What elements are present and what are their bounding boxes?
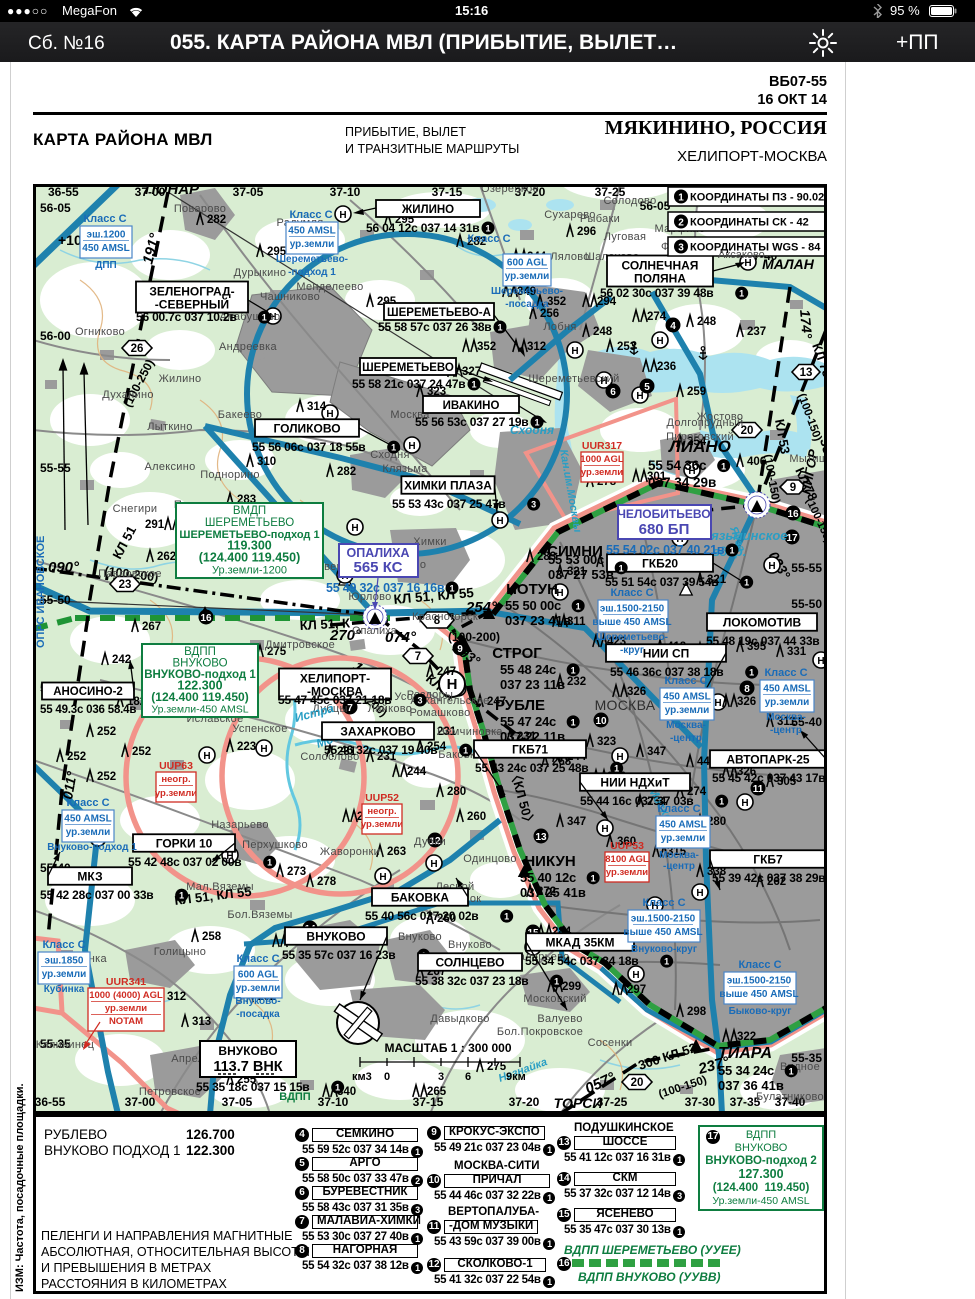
svg-text:ЖИЛИНО: ЖИЛИНО [401, 204, 454, 216]
svg-text:55 53 43с 037 25 47в: 55 53 43с 037 25 47в [392, 497, 505, 511]
svg-text:UUR341: UUR341 [106, 976, 146, 988]
svg-text:1: 1 [719, 797, 724, 807]
svg-text:55 49 32с 037 16 16в: 55 49 32с 037 16 16в [326, 581, 445, 595]
svg-text:ВДПП: ВДПП [279, 1091, 311, 1103]
svg-text:ГОЛИКОВО: ГОЛИКОВО [273, 421, 340, 435]
svg-text:55-55: 55-55 [40, 461, 71, 475]
svg-text:0: 0 [384, 1071, 390, 1083]
svg-text:36-55: 36-55 [35, 1095, 66, 1109]
svg-text:237: 237 [747, 326, 766, 338]
svg-text:291: 291 [145, 519, 165, 531]
svg-text:ВНУКОВО: ВНУКОВО [218, 1044, 277, 1058]
svg-text:313: 313 [192, 1016, 211, 1028]
svg-text:ур.земли: ур.земли [66, 827, 110, 838]
svg-text:326: 326 [737, 696, 756, 708]
svg-text:Внуково-круг: Внуково-круг [631, 944, 697, 955]
svg-text:090°: 090° [48, 559, 80, 576]
svg-text:450 AMSL: 450 AMSL [288, 226, 335, 237]
svg-text:037 25 41в: 037 25 41в [520, 885, 586, 900]
svg-text:выше 450 AMSL: выше 450 AMSL [719, 989, 798, 1000]
svg-text:ур.земли: ур.земли [155, 788, 197, 799]
svg-text:37-10: 37-10 [330, 185, 361, 199]
svg-text:1: 1 [749, 668, 754, 678]
svg-text:450 AMSL: 450 AMSL [663, 692, 710, 703]
svg-text:МКАД 35КМ: МКАД 35КМ [546, 935, 615, 949]
svg-text:242: 242 [112, 654, 131, 666]
svg-text:Класс C: Класс C [764, 667, 807, 679]
svg-text:эш.1500-2150: эш.1500-2150 [727, 976, 792, 987]
svg-text:Внуково: Внуково [398, 931, 442, 943]
svg-text:36-55: 36-55 [48, 185, 79, 199]
svg-text:Аксаково: Аксаково [718, 249, 765, 261]
svg-text:-посадка: -посадка [505, 299, 549, 310]
svg-text:1: 1 [534, 418, 539, 428]
svg-text:252: 252 [67, 751, 86, 763]
svg-text:16: 16 [200, 613, 212, 624]
svg-text:1: 1 [591, 873, 596, 883]
svg-text:Жилино: Жилино [159, 373, 202, 385]
svg-text:247: 247 [437, 666, 456, 678]
svg-text:Мытищи: Мытищи [789, 453, 827, 465]
svg-text:55 56 06с 037 18 55в: 55 56 06с 037 18 55в [252, 440, 365, 454]
svg-text:565 КС: 565 КС [354, 559, 403, 576]
svg-text:310: 310 [257, 456, 276, 468]
svg-text:299: 299 [562, 981, 581, 993]
svg-text:Перхушково: Перхушково [242, 839, 308, 851]
svg-text:Шереметьево-: Шереметьево- [491, 286, 563, 297]
svg-text:55 54 36с: 55 54 36с [648, 458, 707, 473]
svg-text:Класс C: Класс C [664, 675, 707, 687]
svg-text:ВНУКОВО: ВНУКОВО [306, 929, 365, 943]
svg-text:ГОРКИ 10: ГОРКИ 10 [156, 836, 213, 850]
svg-text:ТИАРА: ТИАРА [718, 1045, 772, 1062]
svg-text:Валуево: Валуево [537, 1013, 582, 1025]
svg-text:037 23 11в: 037 23 11в [500, 677, 565, 692]
svg-text:248: 248 [697, 316, 717, 328]
svg-text:ур.земли: ур.земли [290, 239, 334, 250]
svg-text:1: 1 [335, 1083, 340, 1093]
svg-text:55 43 24с 037 25 48в: 55 43 24с 037 25 48в [475, 761, 588, 775]
svg-text:278: 278 [317, 876, 337, 888]
svg-text:КООРДИНАТЫ СК - 42: КООРДИНАТЫ СК - 42 [690, 217, 809, 229]
svg-text:3: 3 [417, 696, 422, 706]
svg-text:259: 259 [687, 386, 706, 398]
svg-text:312: 312 [527, 341, 546, 353]
svg-text:ВМДП: ВМДП [233, 505, 266, 517]
svg-text:55 47 45с 037 21 18в: 55 47 45с 037 21 18в [278, 693, 391, 707]
svg-text:55 42 28с 037 00 33в: 55 42 28с 037 00 33в [40, 888, 153, 902]
svg-text:450 AMSL: 450 AMSL [82, 243, 129, 254]
svg-text:Давыдково: Давыдково [430, 1013, 489, 1025]
svg-text:450 AMSL: 450 AMSL [659, 820, 706, 831]
svg-text:1: 1 [449, 584, 454, 594]
svg-text:406: 406 [747, 456, 766, 468]
svg-text:253: 253 [617, 341, 636, 353]
svg-text:1: 1 [576, 601, 581, 611]
svg-text:267: 267 [142, 621, 161, 633]
svg-text:ВДПП: ВДПП [184, 646, 216, 658]
svg-text:Внуково-: Внуково- [235, 996, 280, 1007]
svg-text:Класс C: Класс C [83, 213, 126, 225]
svg-text:ХЕЛИПОРТ-: ХЕЛИПОРТ- [300, 672, 370, 686]
svg-text:ур.земли: ур.земли [606, 867, 648, 878]
svg-text:680 БП: 680 БП [639, 521, 690, 538]
svg-text:ЛОКОМОТИВ: ЛОКОМОТИВ [723, 615, 802, 629]
svg-text:-центр: -центр [770, 725, 802, 736]
svg-text:-подход 1: -подход 1 [288, 267, 336, 278]
svg-text:ЛИАНО: ЛИАНО [667, 437, 731, 456]
svg-text:Бол.Вяземы: Бол.Вяземы [227, 909, 292, 921]
svg-text:СОЛНЦЕВО: СОЛНЦЕВО [436, 955, 505, 969]
svg-text:Назарьево: Назарьево [211, 819, 269, 831]
svg-text:КЛ 51, К: КЛ 51, К [299, 615, 350, 633]
svg-text:55 58 57с 037 26 38в: 55 58 57с 037 26 38в [378, 320, 491, 334]
svg-text:55 38 32с 037 23 18в: 55 38 32с 037 23 18в [415, 974, 528, 988]
svg-text:Лобня: Лобня [543, 321, 576, 333]
svg-text:Класс C: Класс C [610, 587, 653, 599]
svg-text:ур.земли: ур.земли [581, 467, 623, 478]
svg-text:11: 11 [753, 784, 764, 795]
svg-text:323: 323 [597, 736, 616, 748]
svg-text:НИИ СП: НИИ СП [643, 646, 690, 660]
svg-text:55 40 56с 037 20 02в: 55 40 56с 037 20 02в [365, 909, 478, 923]
svg-text:3: 3 [438, 1071, 444, 1083]
svg-text:258: 258 [202, 931, 222, 943]
svg-text:РУБЛЕ: РУБЛЕ [495, 697, 545, 714]
svg-text:UUP53: UUP53 [610, 840, 644, 852]
svg-text:ОПАЛИХА: ОПАЛИХА [346, 546, 409, 560]
svg-text:ЗАХАРКОВО: ЗАХАРКОВО [340, 724, 415, 738]
svg-text:9: 9 [790, 482, 796, 494]
svg-text:Шереметьевский: Шереметьевский [528, 373, 619, 385]
svg-text:55-50: 55-50 [791, 597, 822, 611]
svg-text:ШЕРЕМЕТЬЕВО-А: ШЕРЕМЕТЬЕВО-А [387, 307, 491, 319]
svg-text:56 00.7с 037 10.2в: 56 00.7с 037 10.2в [136, 310, 237, 324]
svg-text:ХИМКИ ПЛАЗА: ХИМКИ ПЛАЗА [404, 478, 492, 492]
svg-text:352: 352 [477, 341, 496, 353]
svg-text:37-15: 37-15 [432, 185, 463, 199]
svg-text:1: 1 [554, 977, 559, 987]
svg-text:17: 17 [786, 533, 798, 544]
svg-text:8100 AGL: 8100 AGL [605, 854, 649, 865]
svg-text:56-00: 56-00 [40, 329, 71, 343]
svg-text:600 AGL: 600 AGL [238, 970, 278, 981]
svg-text:55 49.3с 036 58.4в: 55 49.3с 036 58.4в [40, 704, 136, 716]
svg-text:Поварово: Поварово [174, 203, 226, 215]
svg-text:неогр.: неогр. [367, 806, 396, 817]
svg-text:55 34 24с: 55 34 24с [718, 1063, 774, 1078]
svg-text:298: 298 [687, 1006, 707, 1018]
svg-text:неогр.: неогр. [161, 774, 190, 785]
svg-text:NOTAM: NOTAM [109, 1016, 143, 1027]
svg-text:55 40 12с: 55 40 12с [520, 870, 576, 885]
svg-text:297: 297 [627, 984, 646, 996]
svg-text:Клязьма: Клязьма [382, 463, 428, 475]
svg-text:Снегири: Снегири [113, 503, 158, 515]
svg-text:ГКБ20: ГКБ20 [642, 556, 678, 570]
svg-text:5: 5 [644, 382, 650, 393]
svg-text:UUR317: UUR317 [582, 440, 622, 452]
svg-text:Красногорск: Красногорск [412, 611, 478, 623]
svg-text:ур.земли: ур.земли [665, 705, 709, 716]
svg-text:ИВАКИНО: ИВАКИНО [443, 400, 500, 412]
svg-text:Шереметьево-: Шереметьево- [276, 254, 348, 265]
svg-text:2: 2 [678, 217, 684, 228]
svg-text:ур.земли: ур.земли [505, 271, 549, 282]
svg-text:16: 16 [787, 509, 799, 520]
svg-text:МАСШТАБ 1 : 300 000: МАСШТАБ 1 : 300 000 [384, 1041, 511, 1055]
svg-text:037 36 41в: 037 36 41в [718, 1078, 784, 1093]
svg-text:АНОСИНО-2: АНОСИНО-2 [53, 686, 123, 698]
svg-text:037 34 29в: 037 34 29в [648, 475, 716, 490]
svg-text:Поднорино: Поднорино [200, 469, 260, 481]
svg-text:СОЛНЕЧНАЯ: СОЛНЕЧНАЯ [622, 259, 699, 273]
svg-text:Сосенки: Сосенки [588, 1037, 633, 1049]
svg-text:260: 260 [467, 811, 486, 823]
svg-text:Быково-круг: Быково-круг [729, 1006, 792, 1017]
svg-text:56 04 12с 037 14 31в: 56 04 12с 037 14 31в [366, 221, 479, 235]
svg-text:АВТОПАРК-25: АВТОПАРК-25 [726, 752, 810, 766]
svg-text:232: 232 [567, 676, 586, 688]
svg-text:252: 252 [97, 771, 116, 783]
svg-text:55 58 21с 037 24 47в: 55 58 21с 037 24 47в [352, 377, 465, 391]
svg-text:352: 352 [547, 296, 566, 308]
svg-text:55 54 02с 037 40 21в: 55 54 02с 037 40 21в [606, 543, 725, 557]
svg-text:6: 6 [610, 387, 616, 398]
svg-text:55 56 53с 037 27 19в: 55 56 53с 037 27 19в [415, 415, 528, 429]
svg-text:ОПРС ИВАНОВСКОЕ: ОПРС ИВАНОВСКОЕ [35, 536, 47, 648]
svg-text:Класс C: Класс C [236, 953, 279, 965]
svg-text:Класс C: Класс C [42, 939, 85, 951]
svg-text:248: 248 [593, 326, 613, 338]
svg-text:23: 23 [119, 579, 132, 591]
svg-text:ДПП: ДПП [95, 260, 117, 271]
svg-text:Класс C: Класс C [642, 897, 685, 909]
svg-text:1: 1 [789, 1066, 794, 1076]
svg-text:56 02 30с 037 39 48в: 56 02 30с 037 39 48в [600, 286, 713, 300]
svg-text:Класс C: Класс C [738, 959, 781, 971]
svg-text:274: 274 [647, 311, 667, 323]
svg-text:7: 7 [415, 651, 421, 663]
svg-text:Голицыно: Голицыно [154, 946, 206, 958]
svg-text:Павловское: Павловское [98, 568, 162, 580]
svg-text:ЗЕЛЕНОГРАД-: ЗЕЛЕНОГРАД- [149, 285, 234, 299]
svg-text:ПОЛЯНА: ПОЛЯНА [634, 272, 686, 286]
svg-text:9: 9 [457, 644, 463, 655]
svg-text:Менделеево: Менделеево [296, 281, 363, 293]
svg-text:037 23 41в: 037 23 41в [505, 613, 571, 628]
svg-text:ур.земли: ур.земли [765, 697, 809, 708]
svg-text:Кубинка: Кубинка [44, 983, 85, 995]
svg-text:UUP52: UUP52 [365, 792, 399, 804]
svg-text:Москва-: Москва- [666, 720, 706, 731]
svg-text:1: 1 [571, 665, 576, 675]
svg-text:(124.400 119.450): (124.400 119.450) [199, 550, 300, 564]
svg-text:Опалиха: Опалиха [352, 625, 398, 637]
svg-text:ур.земли: ур.земли [105, 1003, 147, 1014]
svg-text:450 AMSL: 450 AMSL [64, 814, 111, 825]
svg-text:НОТУН: НОТУН [506, 581, 558, 598]
svg-text:км3: км3 [352, 1071, 372, 1083]
svg-text:37-05: 37-05 [222, 1095, 253, 1109]
svg-text:1: 1 [267, 858, 272, 868]
svg-text:4: 4 [670, 321, 676, 332]
svg-text:ВНУКОВО: ВНУКОВО [172, 657, 227, 669]
svg-text:Солодово: Солодово [603, 195, 656, 207]
svg-text:Жаворонки: Жаворонки [320, 846, 380, 858]
svg-text:174°: 174° [797, 309, 815, 340]
svg-text:(124.400 119.450): (124.400 119.450) [151, 690, 248, 704]
svg-text:55 34 54с 037 34 18в: 55 34 54с 037 34 18в [525, 954, 638, 968]
svg-text:347: 347 [567, 816, 586, 828]
svg-text:Луговая: Луговая [604, 231, 647, 243]
svg-text:1: 1 [497, 323, 502, 333]
svg-text:1: 1 [485, 224, 490, 234]
svg-text:Одинцово: Одинцово [463, 853, 516, 865]
svg-text:1: 1 [729, 546, 734, 556]
svg-text:НИИ НДХиТ: НИИ НДХиТ [600, 775, 670, 789]
svg-text:37-30: 37-30 [685, 1095, 716, 1109]
svg-text:9км: 9км [506, 1071, 526, 1083]
svg-text:Андреевка: Андреевка [219, 341, 277, 353]
svg-text:Класс C: Класс C [66, 797, 109, 809]
svg-text:ШЕРЕМЕТЬЕВО: ШЕРЕМЕТЬЕВО [362, 362, 454, 374]
svg-text:1000 AGL: 1000 AGL [580, 454, 624, 465]
svg-text:314: 314 [307, 401, 327, 413]
svg-text:1: 1 [391, 443, 396, 453]
svg-text:1: 1 [678, 192, 684, 203]
svg-text:450 AMSL: 450 AMSL [763, 684, 810, 695]
svg-text:55 45 42с 037 43 17в: 55 45 42с 037 43 17в [712, 771, 825, 785]
svg-text:223: 223 [237, 741, 256, 753]
svg-text:244: 244 [407, 766, 427, 778]
svg-text:1: 1 [504, 912, 509, 922]
svg-text:Бол.Покровское: Бол.Покровское [497, 1026, 583, 1038]
svg-text:Шереметьево-: Шереметьево- [596, 632, 668, 643]
svg-text:8: 8 [744, 684, 750, 695]
svg-text:эш.1500-2150: эш.1500-2150 [600, 604, 665, 615]
svg-text:262: 262 [157, 551, 176, 563]
svg-text:эш.1850: эш.1850 [45, 956, 84, 967]
svg-text:55 39 42с 037 38 29в: 55 39 42с 037 38 29в [712, 871, 825, 885]
svg-text:Москва-: Москва- [766, 712, 806, 723]
svg-text:ШЕРЕМЕТЬЕВО: ШЕРЕМЕТЬЕВО [205, 517, 294, 529]
svg-text:265: 265 [427, 1086, 447, 1098]
svg-text:1: 1 [664, 957, 669, 967]
svg-text:-центр: -центр [663, 861, 695, 872]
svg-text:1: 1 [739, 289, 744, 299]
svg-text:Внуково: Внуково [448, 939, 492, 951]
svg-text:МОСКВА: МОСКВА [595, 697, 656, 713]
svg-text:выше 450 AMSL: выше 450 AMSL [592, 617, 671, 628]
svg-text:13: 13 [535, 832, 547, 843]
svg-text:ЧЕЛОБИТЬЕВО: ЧЕЛОБИТЬЕВО [617, 507, 710, 521]
svg-text:-посадка: -посадка [236, 1009, 280, 1020]
svg-text:55-55: 55-55 [791, 561, 822, 575]
svg-text:347: 347 [647, 746, 666, 758]
svg-text:Петровское: Петровское [139, 1086, 201, 1098]
svg-text:СТРОГ: СТРОГ [492, 645, 542, 662]
svg-text:037 22 11в: 037 22 11в [500, 729, 565, 744]
svg-text:Лялово: Лялово [550, 251, 589, 263]
svg-text:56-05: 56-05 [40, 201, 71, 215]
svg-text:1: 1 [179, 891, 184, 901]
svg-text:296: 296 [577, 226, 596, 238]
svg-text:МКЗ: МКЗ [77, 869, 102, 883]
svg-text:1: 1 [619, 563, 624, 573]
svg-text:эш.1500-2150: эш.1500-2150 [631, 914, 696, 925]
svg-text:МАЛАН: МАЛАН [762, 256, 815, 272]
svg-text:Дубки: Дубки [414, 836, 446, 848]
svg-text:Мал.Вяземы: Мал.Вяземы [186, 881, 254, 893]
svg-text:КООРДИНАТЫ ПЗ - 90.02: КООРДИНАТЫ ПЗ - 90.02 [690, 192, 824, 204]
svg-text:282: 282 [207, 214, 226, 226]
svg-text:263: 263 [387, 846, 406, 858]
svg-text:Класс C: Класс C [467, 233, 510, 245]
svg-text:37-20: 37-20 [509, 1095, 540, 1109]
svg-text:55 53 00с: 55 53 00с [548, 552, 604, 567]
svg-text:280: 280 [447, 786, 466, 798]
svg-text:Немчиновка: Немчиновка [437, 726, 503, 738]
svg-text:282: 282 [337, 466, 356, 478]
svg-text:Огниково: Огниково [75, 326, 125, 338]
svg-text:ур.земли: ур.земли [361, 819, 403, 830]
svg-text:Лыткино: Лыткино [147, 421, 192, 433]
svg-text:-круг: -круг [620, 645, 644, 656]
svg-text:1: 1 [721, 461, 726, 471]
svg-text:выше 450 AMSL: выше 450 AMSL [623, 927, 702, 938]
svg-text:Класс C: Класс C [657, 803, 700, 815]
svg-text:Успенское: Успенское [232, 723, 287, 735]
svg-text:55 35 57с 037 16 23в: 55 35 57с 037 16 23в [282, 948, 395, 962]
svg-text:Дмитровское: Дмитровское [265, 639, 335, 651]
svg-text:20: 20 [631, 1077, 644, 1089]
svg-text:Ур.земли-450 AMSL: Ур.земли-450 AMSL [151, 703, 248, 715]
svg-text:55 46 32с 037 19 40в: 55 46 32с 037 19 40в [324, 743, 437, 757]
svg-text:ур.земли: ур.земли [42, 969, 86, 980]
svg-text:273: 273 [287, 866, 306, 878]
svg-text:ур.земли: ур.земли [236, 983, 280, 994]
svg-text:1: 1 [471, 380, 476, 390]
svg-text:1000 (4000) AGL: 1000 (4000) AGL [89, 990, 163, 1001]
svg-text:ТОРСИ: ТОРСИ [554, 1095, 604, 1111]
svg-text:Долгопрудный: Долгопрудный [667, 417, 744, 429]
svg-text:ГКБ7: ГКБ7 [753, 852, 783, 866]
svg-text:Внуково-подход 1: Внуково-подход 1 [47, 842, 137, 853]
svg-text:БАКОВКА: БАКОВКА [391, 890, 449, 904]
svg-text:-центр: -центр [670, 733, 702, 744]
svg-text:26: 26 [131, 343, 144, 355]
svg-text:3: 3 [531, 500, 536, 510]
svg-text:Рыбаки: Рыбаки [580, 213, 620, 225]
svg-text:Алексино: Алексино [144, 461, 195, 473]
svg-text:Дурыкино: Дурыкино [234, 267, 287, 279]
svg-text:113.7 ВНК: 113.7 ВНК [213, 1059, 282, 1075]
svg-text:55 48 24с: 55 48 24с [500, 662, 556, 677]
svg-text:эш.1200: эш.1200 [87, 230, 126, 241]
svg-text:Ур.земли-1200: Ур.земли-1200 [212, 564, 287, 576]
svg-text:236: 236 [657, 361, 676, 373]
svg-text:1: 1 [262, 313, 267, 323]
svg-text:252: 252 [132, 746, 151, 758]
svg-text:13: 13 [800, 367, 813, 379]
svg-text:10: 10 [595, 716, 607, 727]
svg-text:ур.земли: ур.земли [661, 833, 705, 844]
svg-text:322: 322 [737, 1031, 756, 1043]
svg-text:55 47 24с: 55 47 24с [500, 714, 556, 729]
svg-text:55 42 48с 037 02 00в: 55 42 48с 037 02 00в [128, 855, 241, 869]
svg-text:6: 6 [465, 1071, 471, 1083]
